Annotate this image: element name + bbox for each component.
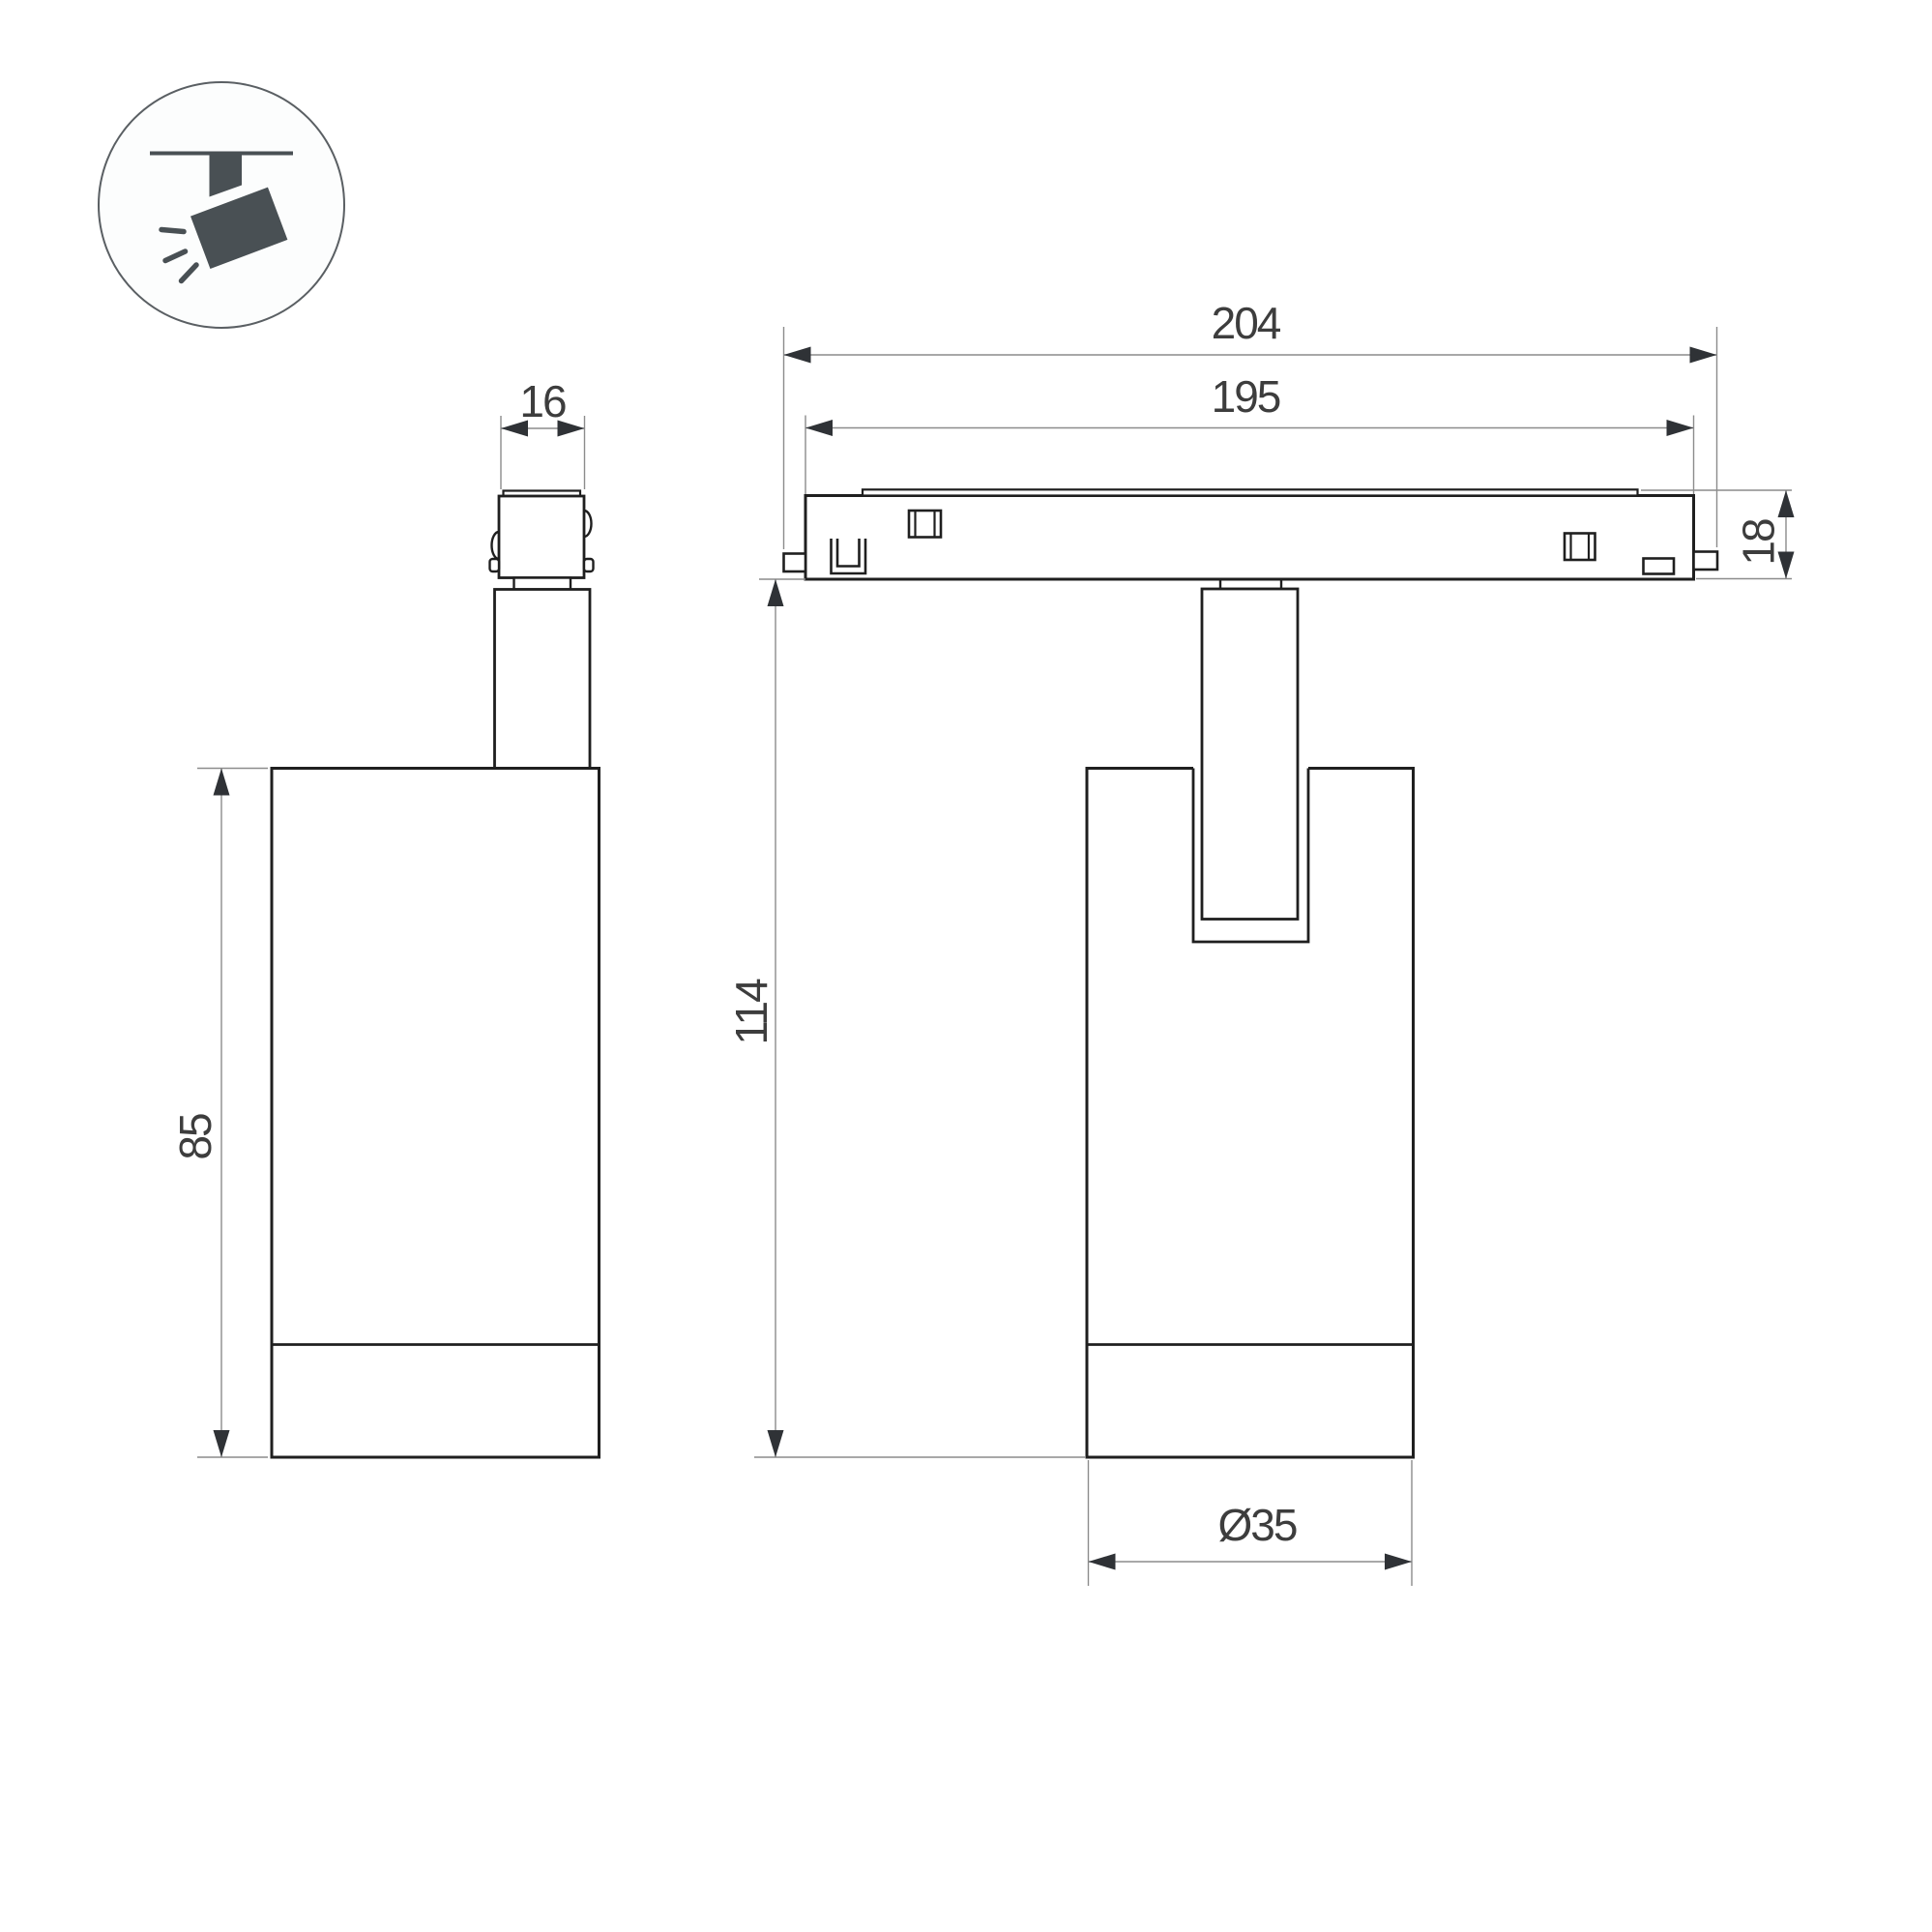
svg-text:16: 16 bbox=[519, 376, 566, 426]
svg-text:18: 18 bbox=[1734, 519, 1784, 566]
svg-text:204: 204 bbox=[1212, 298, 1281, 348]
svg-text:85: 85 bbox=[170, 1114, 220, 1160]
svg-text:195: 195 bbox=[1212, 371, 1280, 422]
svg-text:Ø35: Ø35 bbox=[1218, 1500, 1297, 1550]
svg-text:114: 114 bbox=[726, 979, 776, 1045]
